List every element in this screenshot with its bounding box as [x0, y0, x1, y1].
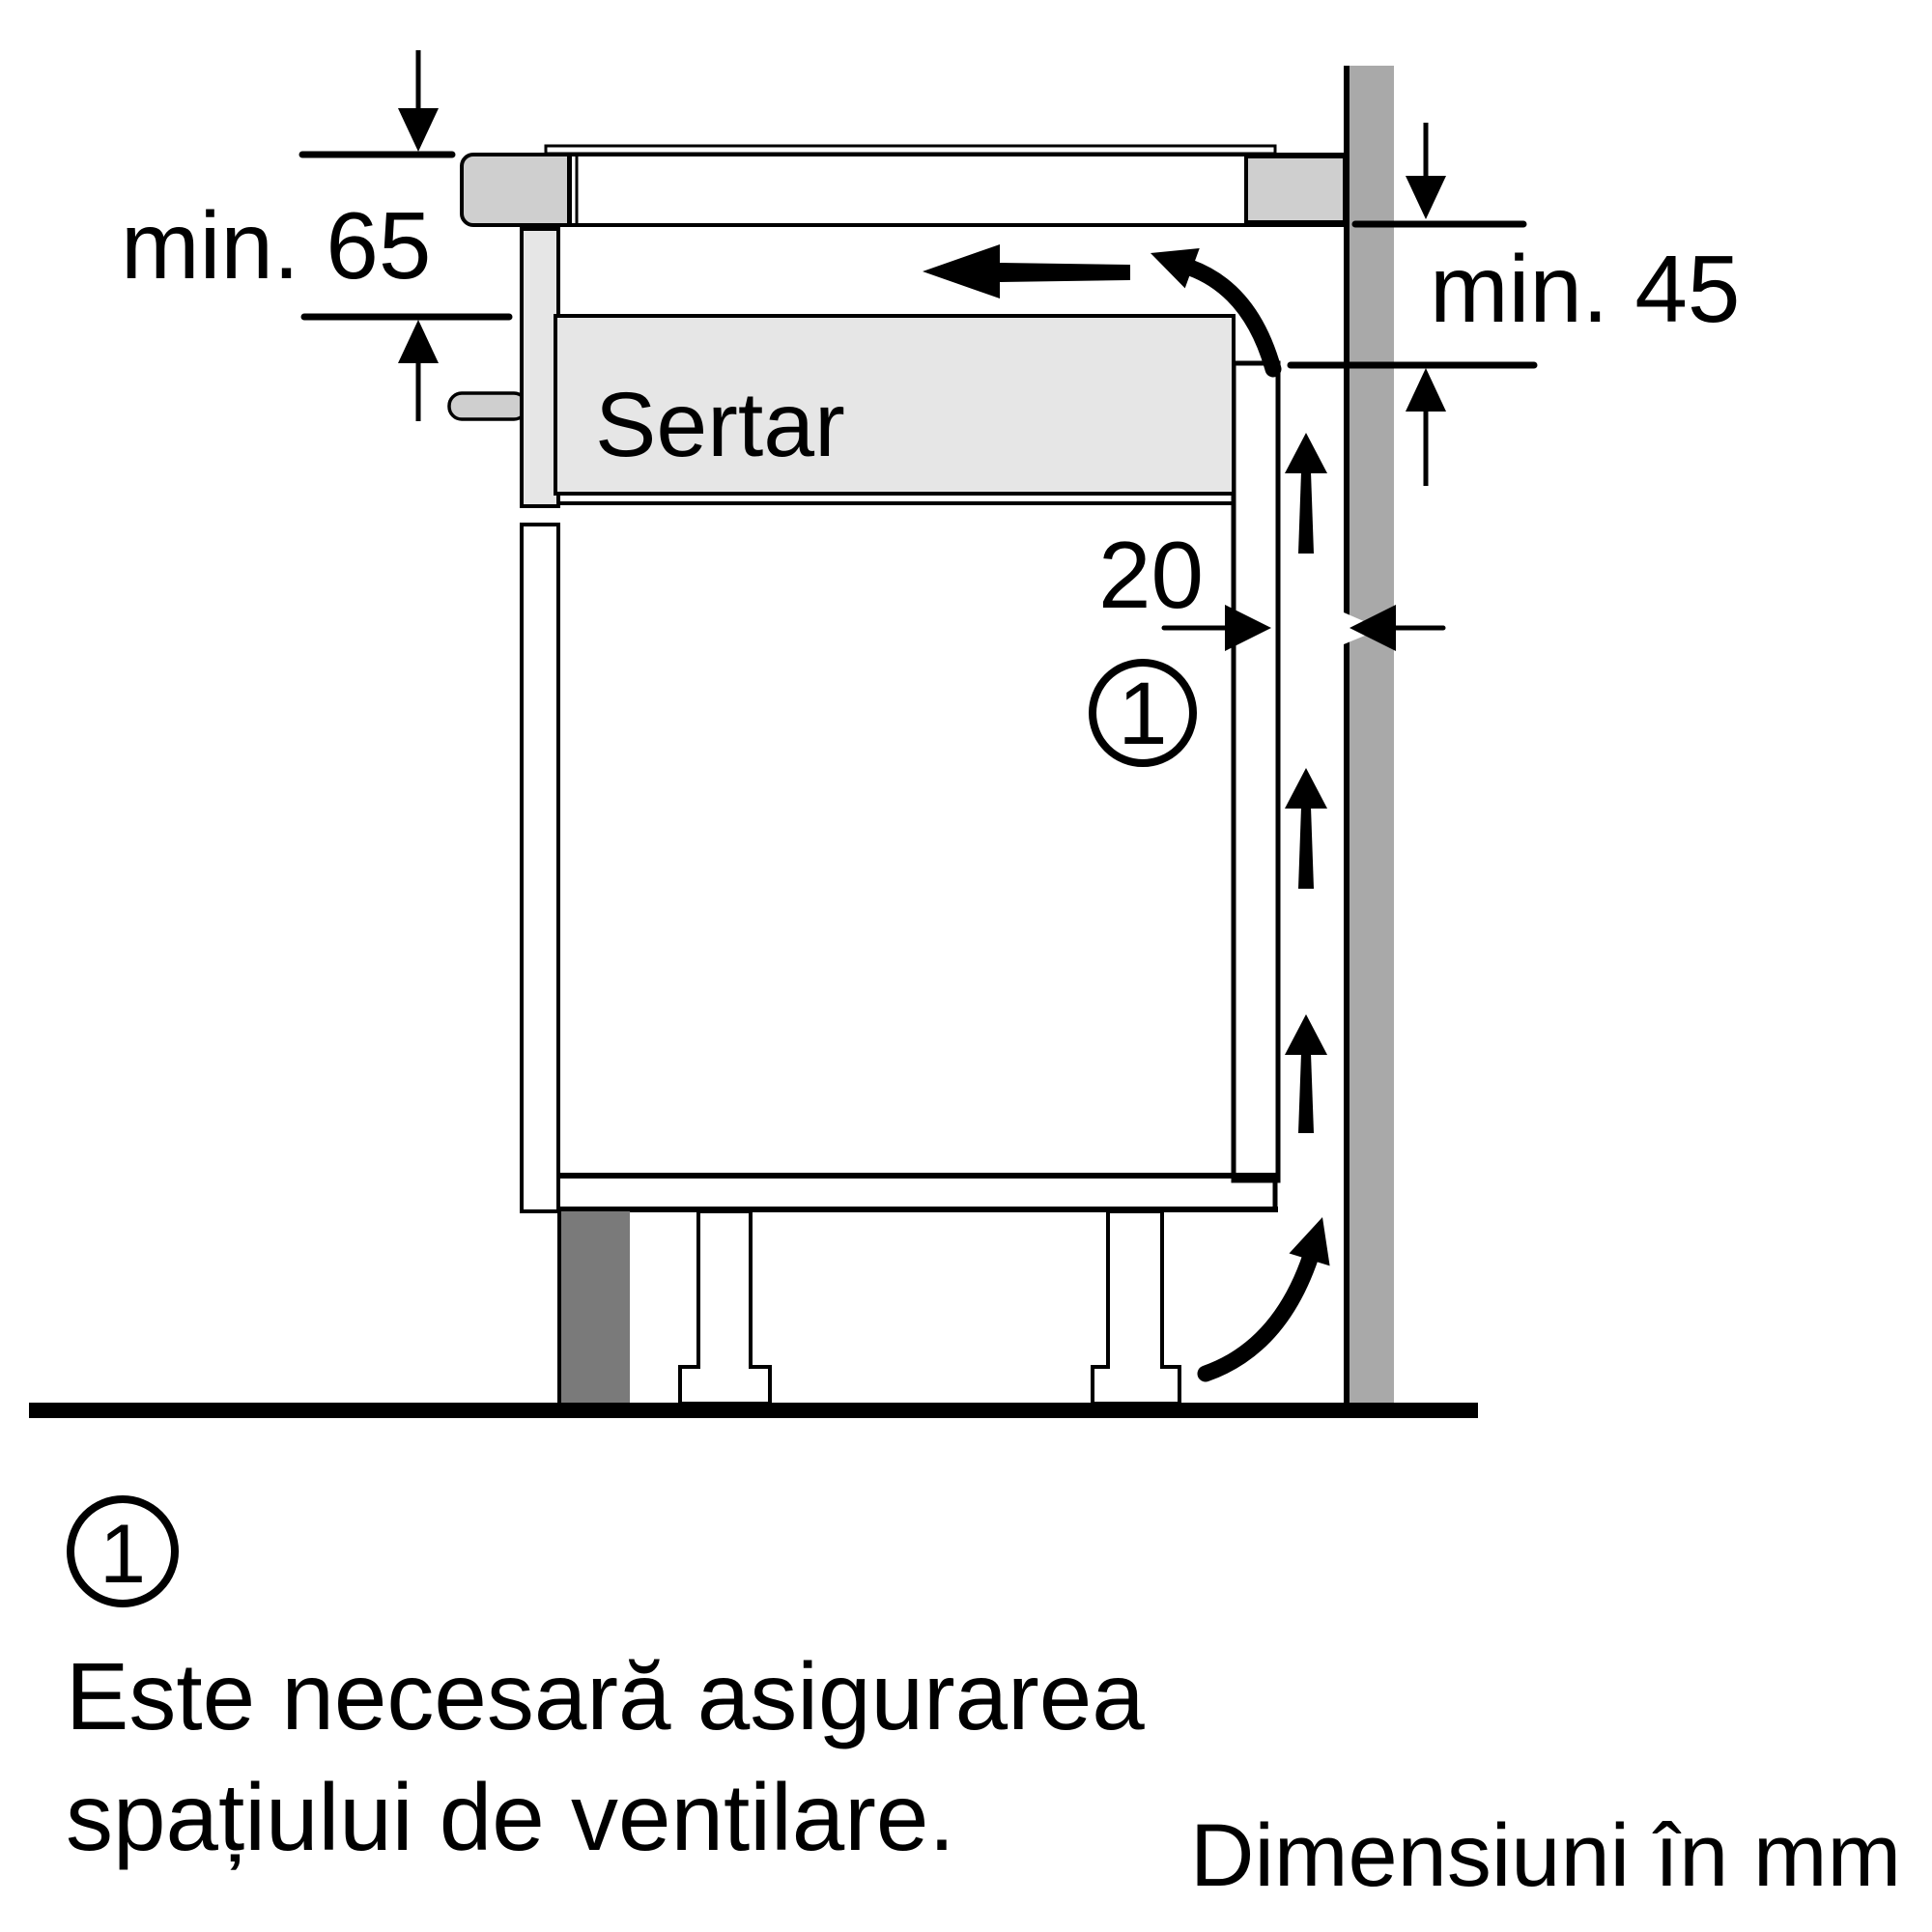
dimension-min-65: min. 65 [121, 50, 509, 421]
front-rail [522, 229, 558, 506]
cabinet-bottom-panel [522, 1176, 1278, 1209]
curved-arrow-head [1290, 1211, 1344, 1266]
cabinet-back-panel [1234, 363, 1278, 1180]
drawer: Sertar [555, 316, 1234, 494]
worktop-slab [570, 155, 1345, 225]
arrow-head [1285, 768, 1327, 809]
hob-glass-surface [546, 146, 1275, 154]
hob-left-profile [462, 155, 569, 225]
arrow-shaft [1298, 807, 1314, 889]
hob-right-profile [1246, 156, 1345, 222]
curved-arrow-icon [1206, 1211, 1343, 1374]
front-panel [522, 525, 558, 1211]
down-arrow-icon [1406, 123, 1446, 219]
arrow-head [1406, 176, 1446, 219]
callout-number: 1 [1118, 665, 1167, 763]
dim-label-min-45: min. 45 [1430, 236, 1740, 342]
up-arrow-icon [398, 320, 439, 421]
note-line-2: spațiului de ventilare. [66, 1764, 955, 1870]
callout-marker: 1 [1093, 663, 1193, 763]
airflow-up-arrow-icon [1285, 1014, 1327, 1133]
dim-label-min-65: min. 65 [121, 192, 431, 298]
airflow-up-arrow-icon [1285, 433, 1327, 554]
note: 1 Este necesară asigurarea spațiului de … [66, 1499, 1145, 1870]
page: Sertar min. 65 min. 4 [0, 0, 1932, 1932]
units-label: Dimensiuni în mm [1190, 1806, 1901, 1905]
drawer-label: Sertar [595, 374, 845, 476]
arrow-head [1285, 1014, 1327, 1055]
left-arrow-icon [923, 244, 1130, 298]
curved-arrow-tail [1206, 1256, 1311, 1374]
wall-edge-line [1344, 66, 1350, 1403]
plinth-block [557, 1211, 630, 1403]
wall-surface [1349, 66, 1394, 1403]
arrow-shaft [1298, 471, 1314, 554]
down-arrow-icon [398, 50, 439, 152]
arrow-head [398, 320, 439, 363]
front-leg [680, 1211, 770, 1404]
rear-leg [1093, 1211, 1179, 1404]
arrow-head [1406, 368, 1446, 412]
note-line-1: Este necesară asigurarea [66, 1643, 1145, 1749]
worktop [462, 146, 1345, 225]
airflow-up-arrow-icon [1285, 768, 1327, 889]
note-marker-number: 1 [99, 1508, 146, 1601]
curved-arrow-head [1143, 233, 1199, 288]
dim-label-20: 20 [1098, 522, 1204, 628]
arrow-head [1285, 433, 1327, 473]
fixing-screw [449, 393, 526, 419]
arrow-head [398, 108, 439, 152]
up-arrow-icon [1406, 368, 1446, 486]
arrow-shaft [1298, 1053, 1314, 1133]
wall [1344, 66, 1394, 1403]
installation-diagram: Sertar min. 65 min. 4 [0, 0, 1932, 1932]
